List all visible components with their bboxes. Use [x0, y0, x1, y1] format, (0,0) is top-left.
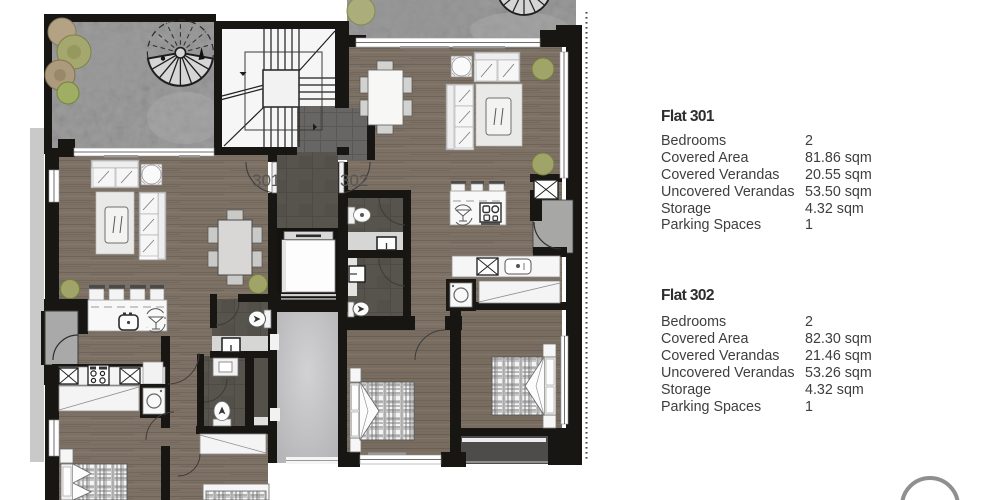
- svg-text:302: 302: [340, 171, 368, 190]
- svg-text:301: 301: [252, 171, 280, 190]
